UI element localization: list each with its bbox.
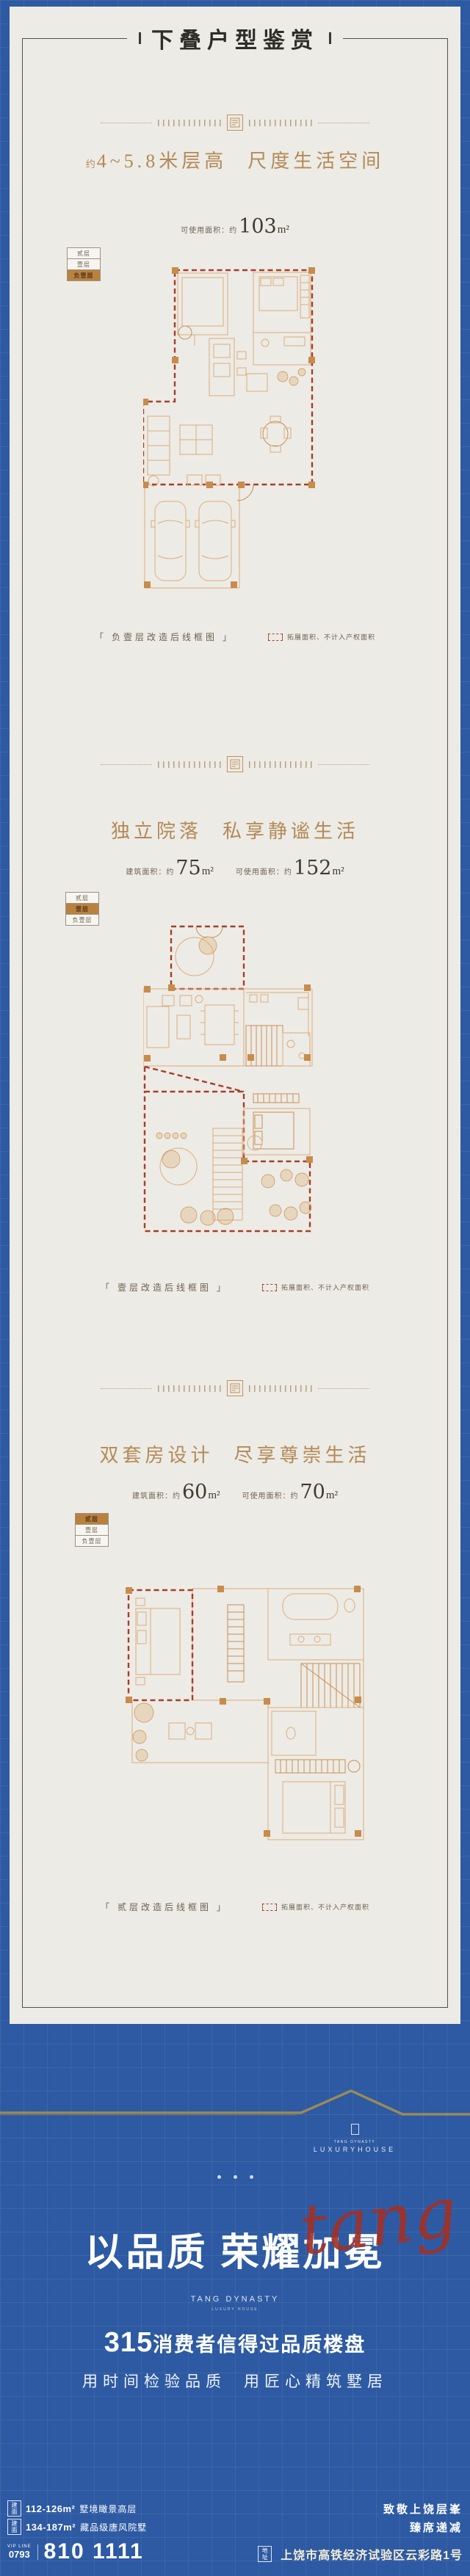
caption-note: 拓展面积、不计入产权面积 xyxy=(268,632,375,642)
floor-legend-basement: 贰层 壹层 负壹层 xyxy=(67,247,101,281)
title-tick-right-icon xyxy=(329,32,331,44)
area-spec: 112-126m² xyxy=(26,2503,75,2514)
divider-dots xyxy=(101,764,152,765)
dashed-area-icon xyxy=(268,634,283,641)
metric-value: 103 xyxy=(239,215,277,238)
product-line: 建面 134-187m² 藏品级唐风院墅 臻席递减 xyxy=(7,2519,463,2535)
section2-title: 独立院落私享静谧生活 xyxy=(10,816,460,843)
metric-label: 建筑面积：约 xyxy=(132,1490,181,1501)
metric-value: 152 xyxy=(294,857,332,879)
brand-sub: LUXURY HOUSE xyxy=(0,2307,470,2312)
divider-dots xyxy=(101,123,152,123)
legend-floor-1: 壹层 xyxy=(75,1525,109,1536)
area-tag: 建面 xyxy=(7,2519,21,2535)
divider-ticks xyxy=(249,1385,312,1392)
legend-floor-b1: 负壹层 xyxy=(65,915,99,926)
section3-caption: 「 贰层改造后线框图 」 拓展面积、不计入产权面积 xyxy=(10,1901,460,1913)
seal-icon xyxy=(227,756,243,772)
metric-label: 建筑面积：约 xyxy=(126,866,174,877)
floor-plan-first-floor xyxy=(143,923,317,1237)
footer-bottom-row: VIP LINE 0793 810 1111 地址 上饶市高铁经济试验区云彩路1… xyxy=(7,2541,463,2563)
caption-note: 拓展面积、不计入产权面积 xyxy=(262,1902,369,1912)
legend-floor-b1: 负壹层 xyxy=(75,1536,109,1547)
claim-text: 消费者信得过品质楼盘 xyxy=(153,2329,366,2357)
section1-title-prefix: 约 xyxy=(86,159,96,170)
divider-ticks xyxy=(158,120,221,126)
address-block: 地址 上饶市高铁经济试验区云彩路1号 xyxy=(258,2545,463,2563)
product-desc: 藏品级唐风院墅 xyxy=(80,2521,147,2533)
usable-area-metric: 可使用面积：约 152 m² xyxy=(236,857,344,879)
section2-metrics: 建筑面积：约 75 m² 可使用面积：约 152 m² xyxy=(10,857,460,879)
metric-unit: m² xyxy=(208,1490,220,1502)
page-title: 下叠户型鉴赏 xyxy=(127,24,343,52)
product-slogan: 臻席递减 xyxy=(410,2519,463,2535)
section2-title-left: 独立院落 xyxy=(111,821,202,842)
section3-metrics: 建筑面积：约 60 m² 可使用面积：约 70 m² xyxy=(10,1481,460,1503)
dashed-area-icon xyxy=(262,1904,277,1911)
built-area-metric: 建筑面积：约 75 m² xyxy=(126,857,214,879)
section1-title-left: 4~5.8米层高 xyxy=(97,150,228,172)
product-slogan: 致敬上饶层峯 xyxy=(383,2501,463,2517)
roof-logo: TANG DYNASTY LUXURYHOUSE xyxy=(294,2124,416,2153)
divider-ticks xyxy=(158,1385,221,1392)
metric-label: 可使用面积：约 xyxy=(236,866,292,877)
caption-text: 「 壹层改造后线框图 」 xyxy=(101,1281,228,1294)
metric-label: 可使用面积：约 xyxy=(242,1490,299,1501)
section-divider xyxy=(10,114,460,131)
floor-plan-basement xyxy=(143,265,317,589)
address-text: 上饶市高铁经济试验区云彩路1号 xyxy=(281,2545,463,2563)
legend-floor-2: 贰层 xyxy=(67,247,101,259)
divider-dots xyxy=(318,764,369,765)
metric-value: 75 xyxy=(176,857,200,879)
roof-seal-icon xyxy=(351,2124,359,2135)
section3-title: 双套房设计尽享尊崇生活 xyxy=(10,1440,460,1467)
page-title-text: 下叠户型鉴赏 xyxy=(151,22,319,54)
product-desc: 墅境瞰景高层 xyxy=(79,2503,137,2515)
section2-caption: 「 壹层改造后线框图 」 拓展面积、不计入产权面积 xyxy=(10,1281,460,1294)
legend-floor-b1-active: 负壹层 xyxy=(67,270,101,281)
metric-unit: m² xyxy=(202,866,214,878)
phone-number: 810 1111 xyxy=(44,2541,144,2563)
usable-area-metric: 可使用面积：约 70 m² xyxy=(242,1481,339,1503)
floor-plan-second-floor xyxy=(117,1579,367,1852)
section-divider xyxy=(10,755,460,773)
seal-icon xyxy=(227,1380,243,1396)
caption-note-text: 拓展面积、不计入产权面积 xyxy=(287,632,375,642)
legend-floor-2-active: 贰层 xyxy=(75,1513,109,1525)
hero-slogan: 用时间检验品质用匠心精筑墅居 xyxy=(0,2370,470,2392)
caption-text: 「 负壹层改造后线框图 」 xyxy=(95,631,234,643)
vip-line-block: VIP LINE 0793 xyxy=(7,2544,38,2560)
brand-en: TANG DYNASTY xyxy=(0,2295,470,2304)
area-tag: 建面 xyxy=(7,2500,21,2517)
divider-ticks xyxy=(249,761,312,768)
metric-unit: m² xyxy=(326,1490,338,1502)
usable-area-metric: 可使用面积：约 103 m² xyxy=(181,215,289,238)
caption-note-text: 拓展面积、不计入产权面积 xyxy=(281,1282,369,1292)
metric-unit: m² xyxy=(278,224,289,236)
section1-title: 约4~5.8米层高尺度生活空间 xyxy=(10,146,460,173)
roof-logo-small-text: TANG DYNASTY xyxy=(294,2140,416,2144)
legend-floor-2: 贰层 xyxy=(65,892,99,904)
section3-title-left: 双套房设计 xyxy=(99,1445,213,1466)
caption-text: 「 贰层改造后线框图 」 xyxy=(101,1901,228,1913)
metric-value: 70 xyxy=(300,1481,325,1503)
poster-page: 下叠户型鉴赏 约4~5.8米层高尺度生活空间 可使用面积：约 103 m² 贰层 xyxy=(0,0,470,2576)
section1-caption: 「 负壹层改造后线框图 」 拓展面积、不计入产权面积 xyxy=(10,631,460,643)
dashed-area-icon xyxy=(262,1284,277,1291)
section1-title-right: 尺度生活空间 xyxy=(247,150,384,172)
claim-number: 315 xyxy=(104,2327,153,2359)
section-divider xyxy=(10,1379,460,1397)
metric-unit: m² xyxy=(332,866,344,878)
product-line: 建面 112-126m² 墅境瞰景高层 致敬上饶层峯 xyxy=(7,2500,463,2517)
slogan-left: 用时间检验品质 xyxy=(82,2373,226,2390)
divider-dots xyxy=(318,1388,369,1389)
hero-script-overlay: tang xyxy=(296,2178,460,2265)
phone-block: VIP LINE 0793 810 1111 xyxy=(7,2541,144,2563)
metric-value: 60 xyxy=(182,1481,207,1503)
divider-ticks xyxy=(249,120,312,126)
footer: 建面 112-126m² 墅境瞰景高层 致敬上饶层峯 建面 134-187m² … xyxy=(7,2500,463,2563)
floor-legend-first: 贰层 壹层 负壹层 xyxy=(65,892,99,926)
roof-logo-text: LUXURYHOUSE xyxy=(294,2146,416,2153)
caption-note-text: 拓展面积、不计入产权面积 xyxy=(281,1902,369,1912)
seal-icon xyxy=(227,115,243,131)
slogan-right: 用匠心精筑墅居 xyxy=(244,2373,388,2390)
floor-legend-second: 贰层 壹层 负壹层 xyxy=(75,1513,109,1547)
divider-ticks xyxy=(158,761,221,768)
legend-floor-1: 壹层 xyxy=(67,259,101,270)
address-tag: 地址 xyxy=(258,2546,272,2562)
metric-label: 可使用面积：约 xyxy=(181,224,237,235)
divider-dots xyxy=(101,1388,152,1389)
built-area-metric: 建筑面积：约 60 m² xyxy=(132,1481,220,1503)
title-tick-left-icon xyxy=(139,32,141,44)
phone-area-code: 0793 xyxy=(9,2549,30,2560)
content-card: 下叠户型鉴赏 约4~5.8米层高尺度生活空间 可使用面积：约 103 m² 贰层 xyxy=(10,7,460,2024)
section1-metrics: 可使用面积：约 103 m² xyxy=(10,215,460,238)
legend-floor-1-active: 壹层 xyxy=(65,904,99,915)
quality-claim: 315 消费者信得过品质楼盘 xyxy=(0,2327,470,2359)
section3-title-right: 尽享尊崇生活 xyxy=(234,1445,371,1466)
divider-dots xyxy=(318,123,369,123)
area-spec: 134-187m² xyxy=(26,2522,76,2533)
section2-title-right: 私享静谧生活 xyxy=(223,821,359,842)
caption-note: 拓展面积、不计入产权面积 xyxy=(262,1282,369,1292)
